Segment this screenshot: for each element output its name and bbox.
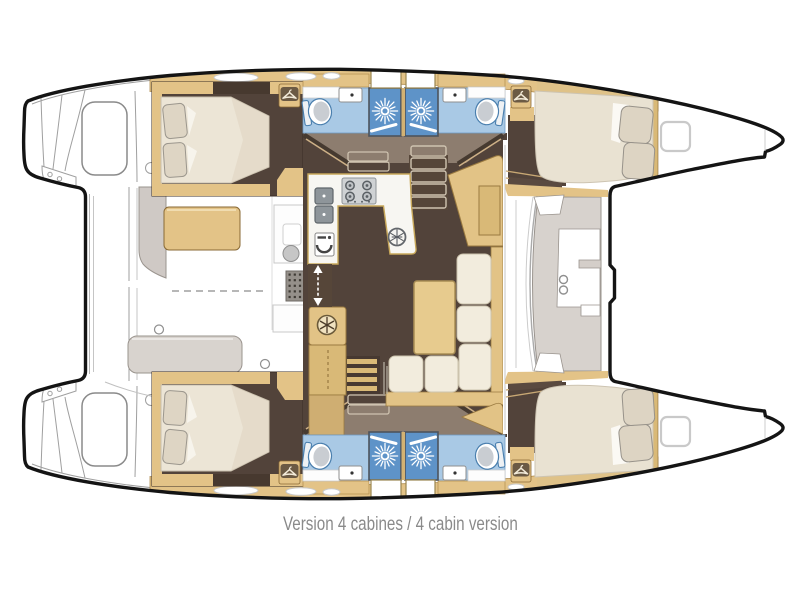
svg-text:Version 4 cabines / 4 cabin ve: Version 4 cabines / 4 cabin version — [283, 512, 518, 534]
